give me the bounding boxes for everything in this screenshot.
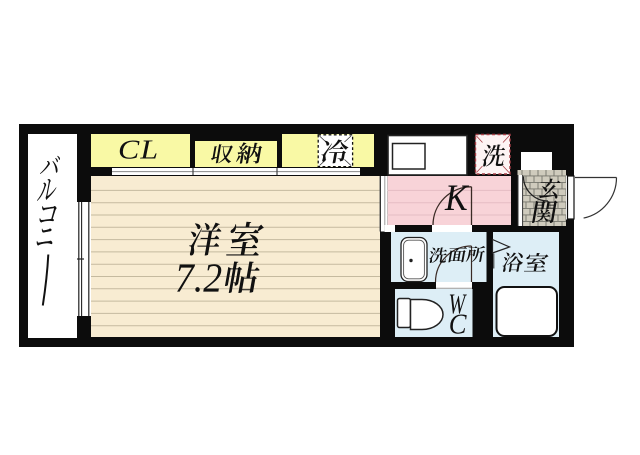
svg-text:C: C bbox=[449, 309, 468, 340]
svg-text:K: K bbox=[444, 177, 470, 219]
svg-text:CL: CL bbox=[118, 136, 159, 165]
svg-text:7.2: 7.2 bbox=[175, 255, 222, 301]
